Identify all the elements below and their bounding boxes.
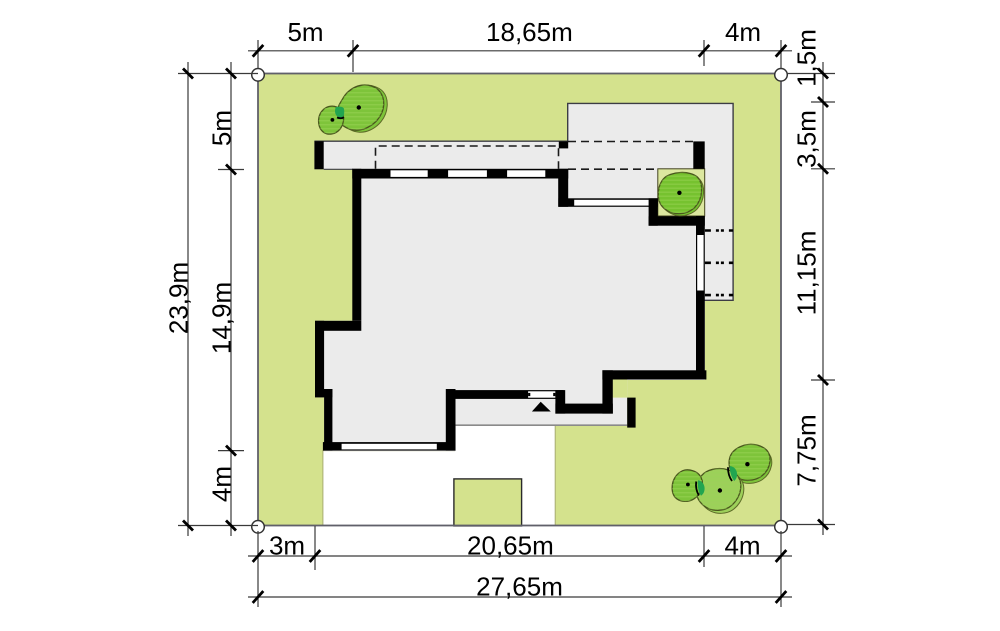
svg-text:27,65m: 27,65m [476,572,563,602]
svg-text:4m: 4m [207,466,237,502]
svg-text:20,65m: 20,65m [467,531,554,561]
svg-text:5m: 5m [287,17,323,47]
svg-text:11,15m: 11,15m [792,231,822,316]
svg-text:7,75m: 7,75m [792,414,822,486]
svg-text:1,5m: 1,5m [792,29,822,87]
svg-text:5m: 5m [207,110,237,146]
svg-text:14,9m: 14,9m [207,282,237,354]
svg-text:3m: 3m [269,531,305,561]
svg-text:4m: 4m [725,17,761,47]
svg-text:4m: 4m [724,531,760,561]
svg-text:3,5m: 3,5m [792,110,822,168]
svg-text:18,65m: 18,65m [486,17,573,47]
svg-text:23,9m: 23,9m [164,262,194,334]
